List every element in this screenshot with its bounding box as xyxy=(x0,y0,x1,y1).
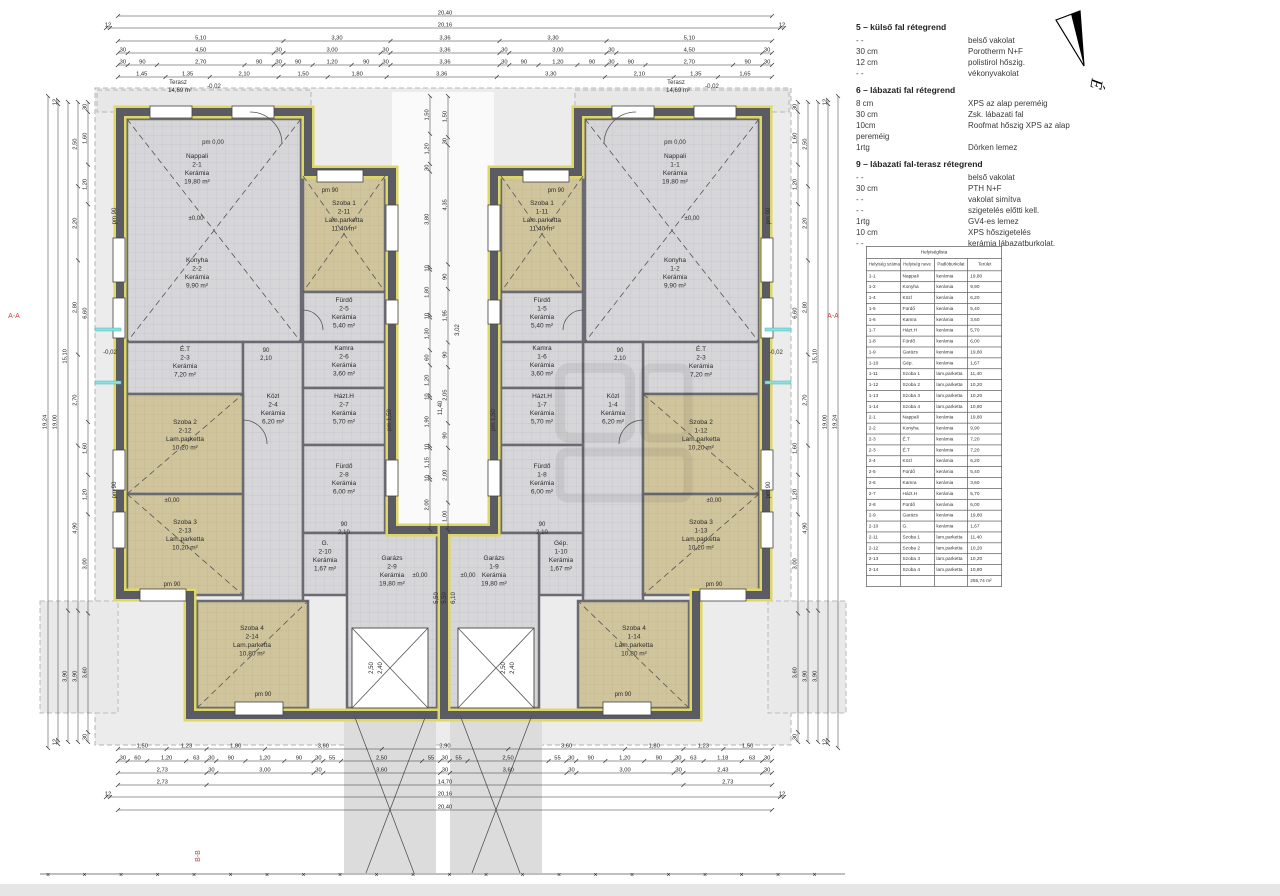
room-name: Nappali xyxy=(900,271,934,282)
room-2-7-hazt-label: Házt.H2-7Kerámia5,70 m² xyxy=(332,393,357,426)
dim-value: 90 xyxy=(295,60,301,66)
dim-value: 19,00 xyxy=(53,415,59,430)
floor-covering: kerámia xyxy=(934,271,968,282)
window xyxy=(113,298,125,338)
schedule-row: 2-11Szoba 1lam.parketta11,40 xyxy=(866,532,1001,543)
dim-value: 55 xyxy=(428,756,434,762)
dim-value: 15,10 xyxy=(813,349,819,364)
room-area: 6,20 xyxy=(968,293,1002,304)
room-number: 2-2 xyxy=(866,423,900,434)
dim-value: 90 xyxy=(443,352,449,358)
dim-value: 2,20 xyxy=(803,218,809,229)
room-schedule: HelyiséglistaHelyiség számaHelyiség neve… xyxy=(866,246,1009,587)
schedule-row: 1-14Szoba 4lam.parketta10,80 xyxy=(866,401,1001,412)
fence-x-mark: × xyxy=(593,872,597,879)
dim-value: 90 xyxy=(363,60,369,66)
dim-value: 30 xyxy=(425,164,431,170)
dim-value: 2,73 xyxy=(157,768,168,774)
legend-row-thickness: - - xyxy=(856,172,968,183)
schedule-row: 1-12Szoba 2lam.parketta10,20 xyxy=(866,380,1001,391)
schedule-row: 2-7Házt.Hkerámia5,70 xyxy=(866,488,1001,499)
room-number: 1-13 xyxy=(866,391,900,402)
dim-value: 1,20 xyxy=(425,143,431,154)
dim-value: 19,24 xyxy=(833,414,839,429)
room-area: 10,20 xyxy=(968,543,1002,554)
dim-value: 30 xyxy=(208,768,214,774)
fence-x-mark: × xyxy=(630,872,634,879)
room-number: 1-5 xyxy=(866,303,900,314)
dim-value: 30 xyxy=(608,48,614,54)
section-mark: A-A xyxy=(827,313,839,320)
plan-label: -0,02 xyxy=(103,350,117,356)
plan-label: pm 1,50 xyxy=(387,409,393,431)
dim-value: 30 xyxy=(764,756,770,762)
floor-covering: kerámia xyxy=(934,499,968,510)
dim-value: 3,90 xyxy=(813,671,819,682)
dim-value: 2,20 xyxy=(73,218,79,229)
dim-value: 3,00 xyxy=(326,48,337,54)
floor-covering: kerámia xyxy=(934,488,968,499)
schedule-row: 1-5Fürdőkerámia5,40 xyxy=(866,303,1001,314)
schedule-row: 1-11Szoba 1lam.parketta11,40 xyxy=(866,369,1001,380)
legend-row: 8 cmXPS az alap pereméig xyxy=(856,98,1276,109)
floor-covering: kerámia xyxy=(934,325,968,336)
vent-mark xyxy=(765,328,791,331)
room-area: 9,90 xyxy=(968,423,1002,434)
floor-covering: kerámia xyxy=(934,412,968,423)
legend-row-thickness: - - xyxy=(856,68,968,79)
dim-value: 1,50 xyxy=(443,111,449,122)
dim-value: 30 xyxy=(764,48,770,54)
room-area: 19,80 xyxy=(968,412,1002,423)
schedule-row: 1-1Nappalikerámia19,80 xyxy=(866,271,1001,282)
room-name: Szoba 3 xyxy=(900,391,934,402)
window xyxy=(386,460,398,496)
room-name: Fürdő xyxy=(900,303,934,314)
room-area: 3,60 xyxy=(968,314,1002,325)
room-name: Gép. xyxy=(900,358,934,369)
dim-value: 1,50 xyxy=(425,109,431,120)
legend-row-material: belső vakolat xyxy=(968,172,1276,183)
plan-label: pm 0,00 xyxy=(664,140,686,146)
room-number: 1-1 xyxy=(866,271,900,282)
dim-value: 30 xyxy=(382,48,388,54)
plan-label: Terasz xyxy=(667,80,685,86)
room-name: Házt.H xyxy=(900,325,934,336)
dim-value: 3,60 xyxy=(503,768,514,774)
window xyxy=(386,205,398,251)
page-edge-band xyxy=(0,884,1280,896)
schedule-row: 2-6Kamrakerámia3,60 xyxy=(866,478,1001,489)
plan-label: pm 90 xyxy=(112,207,118,224)
dim-value: 3,00 xyxy=(552,48,563,54)
plan-label: pm 90 xyxy=(548,188,565,194)
total-area: 255,74 m² xyxy=(968,575,1002,586)
legend-row-material: PTH N+F xyxy=(968,183,1276,194)
dim-value: 63 xyxy=(690,756,696,762)
dim-value: 2,10 xyxy=(634,72,645,78)
legend-row-thickness: 30 cm xyxy=(856,109,968,120)
dim-value: 1,60 xyxy=(793,443,799,454)
dim-value: 1,20 xyxy=(793,179,799,190)
plan-label: 2,10 xyxy=(614,356,626,362)
window xyxy=(761,298,773,338)
dim-value: 3,60 xyxy=(318,744,329,750)
plan-label: ±0,00 xyxy=(685,216,701,222)
room-number: 2-6 xyxy=(866,478,900,489)
room-area: 11,40 xyxy=(968,369,1002,380)
room-1-1-nappali-konyha-label: Nappali1-1Kerámia19,80 m² xyxy=(662,153,688,186)
room-2-9-garazs-label: Garázs2-9Kerámia19,80 m² xyxy=(379,555,405,588)
room-number: 2-3 xyxy=(866,434,900,445)
plan-label: 90 xyxy=(617,348,624,354)
plan-label: 2,50 xyxy=(501,662,507,674)
plan-label: -0,02 xyxy=(207,84,221,90)
dim-value: 1,23 xyxy=(181,744,192,750)
room-name: É.T xyxy=(900,445,934,456)
dim-value: 30 xyxy=(443,138,449,144)
dim-value: 1,35 xyxy=(690,72,701,78)
plan-label: pm 1,50 xyxy=(491,409,497,431)
dim-value: 90 xyxy=(744,60,750,66)
room-name: Szoba 1 xyxy=(900,369,934,380)
room-2-6-kamra-label: Kamra2-6Kerámia3,60 m² xyxy=(332,345,357,378)
dim-value: 90 xyxy=(589,60,595,66)
plan-label: pm 90 xyxy=(766,207,772,224)
window xyxy=(150,106,192,118)
room-area: 7,20 xyxy=(968,445,1002,456)
dim-value: 2,05 xyxy=(443,389,449,400)
room-1-9-garazs-label: Garázs1-9Kerámia19,80 m² xyxy=(481,555,507,588)
floor-covering: lam.parketta xyxy=(934,380,968,391)
room-name: Közl xyxy=(900,456,934,467)
legend-row-thickness: 10cm xyxy=(856,120,968,131)
dim-value: 3,36 xyxy=(439,60,450,66)
dim-value: 30 xyxy=(764,60,770,66)
dim-value: 3,36 xyxy=(439,36,450,42)
room-number: 1-6 xyxy=(866,314,900,325)
dim-value: 2,73 xyxy=(722,780,733,786)
legend-row: 1rtgDörken lemez xyxy=(856,142,1276,153)
plan-label: pm 90 xyxy=(255,692,272,698)
schedule-row: 2-12Szoba 2lam.parketta10,20 xyxy=(866,543,1001,554)
room-area: 5,70 xyxy=(968,325,1002,336)
fence-x-mark: × xyxy=(374,872,378,879)
dim-value: 30 xyxy=(568,756,574,762)
floor-covering: kerámia xyxy=(934,423,968,434)
dim-value: 3,30 xyxy=(545,72,556,78)
plan-label: -0,02 xyxy=(769,350,783,356)
fence-x-mark: × xyxy=(119,872,123,879)
dim-value: 30 xyxy=(442,768,448,774)
room-number: 2-11 xyxy=(866,532,900,543)
dim-value: 30 xyxy=(120,48,126,54)
plan-label: 14,69 m² xyxy=(168,88,192,94)
room-name: Szoba 1 xyxy=(900,532,934,543)
plan-label: ±0,00 xyxy=(165,498,181,504)
dim-value: 19,24 xyxy=(43,414,49,429)
dim-value: 3,00 xyxy=(259,768,270,774)
dim-value: 20,40 xyxy=(438,11,453,17)
room-number: 2-1 xyxy=(866,412,900,423)
dim-value: 30 xyxy=(83,734,89,740)
schedule-row: 2-10G.kerámia1,67 xyxy=(866,521,1001,532)
fence-x-mark: × xyxy=(484,872,488,879)
schedule-row: 2-1Nappalikerámia19,80 xyxy=(866,412,1001,423)
dim-value: 4,50 xyxy=(195,48,206,54)
dim-value: 30 xyxy=(793,104,799,110)
dim-value: 1,23 xyxy=(698,744,709,750)
dim-value: 10 xyxy=(425,265,431,271)
dim-value: 2,10 xyxy=(238,72,249,78)
legend-row-thickness: 12 cm xyxy=(856,57,968,68)
plan-label: ±0,00 xyxy=(707,498,723,504)
dim-value: 2,70 xyxy=(803,394,809,405)
room-schedule-table: HelyiséglistaHelyiség számaHelyiség neve… xyxy=(866,246,1002,587)
driveway-right xyxy=(450,715,542,873)
floor-covering: kerámia xyxy=(934,467,968,478)
fence-x-mark: × xyxy=(82,872,86,879)
room-name: Fürdő xyxy=(900,336,934,347)
legend-row-thickness: 1rtg xyxy=(856,142,968,153)
dim-value: 90 xyxy=(443,432,449,438)
room-name: Szoba 2 xyxy=(900,543,934,554)
floor-covering: kerámia xyxy=(934,293,968,304)
schedule-total-row: 255,74 m² xyxy=(866,575,1001,586)
dim-value: 3,30 xyxy=(331,36,342,42)
floor-covering: lam.parketta xyxy=(934,369,968,380)
vent-mark xyxy=(95,381,121,384)
floor-covering: kerámia xyxy=(934,314,968,325)
legend-row: 30 cmPTH N+F xyxy=(856,183,1276,194)
room-number: 2-9 xyxy=(866,510,900,521)
legend-row: 1rtgGV4-es lemez xyxy=(856,216,1276,227)
schedule-row: 2-2Konyhakerámia9,90 xyxy=(866,423,1001,434)
window xyxy=(386,300,398,324)
room-area: 5,40 xyxy=(968,303,1002,314)
dim-value: 1,80 xyxy=(352,72,363,78)
dim-value: 1,20 xyxy=(793,489,799,500)
fence-x-mark: × xyxy=(338,872,342,879)
legend-row-material: vakolat simítva xyxy=(968,194,1276,205)
section-mark: A-A xyxy=(8,313,20,320)
room-name: Fürdő xyxy=(900,467,934,478)
floor-covering: kerámia xyxy=(934,510,968,521)
dim-value: 10 xyxy=(425,475,431,481)
floor-covering: kerámia xyxy=(934,478,968,489)
plan-label: pm 90 xyxy=(766,481,772,498)
fence-x-mark: × xyxy=(155,872,159,879)
dim-value: 1,20 xyxy=(552,60,563,66)
schedule-row: 2-3É.Tkerámia7,20 xyxy=(866,434,1001,445)
dim-value: 30 xyxy=(501,48,507,54)
section-mark: B-B xyxy=(195,850,202,862)
legend-row-material: szigetelés előtti kell. xyxy=(968,205,1276,216)
room-name: Szoba 3 xyxy=(900,554,934,565)
legend-row-material: Roofmat hőszig XPS az alap xyxy=(968,120,1276,131)
room-number: 1-11 xyxy=(866,369,900,380)
room-name: Kamra xyxy=(900,478,934,489)
legend-row-thickness: 8 cm xyxy=(856,98,968,109)
fence-x-mark: × xyxy=(411,872,415,879)
dim-value: 1,45 xyxy=(136,72,147,78)
legend-row-material: polistirol hőszig. xyxy=(968,57,1276,68)
plan-label: Terasz xyxy=(169,80,187,86)
dim-value: 30 xyxy=(382,60,388,66)
room-area: 10,80 xyxy=(968,401,1002,412)
dim-value: 1,60 xyxy=(83,133,89,144)
fence-x-mark: × xyxy=(776,872,780,879)
schedule-column-header: Helyiség száma xyxy=(866,259,900,271)
window xyxy=(317,170,363,182)
dim-value: 10 xyxy=(425,444,431,450)
room-number: 2-12 xyxy=(866,543,900,554)
plan-label: 2,40 xyxy=(378,662,384,674)
dim-value: 4,90 xyxy=(803,522,809,533)
dim-value: 1,35 xyxy=(182,72,193,78)
window xyxy=(694,106,736,118)
schedule-row: 2-9Garázskerámia19,80 xyxy=(866,510,1001,521)
floor-covering: kerámia xyxy=(934,358,968,369)
plan-label: 5,50 xyxy=(442,592,448,604)
room-area: 5,40 xyxy=(968,467,1002,478)
window xyxy=(761,238,773,282)
room-area: 10,20 xyxy=(968,391,1002,402)
dim-value: 3,90 xyxy=(803,671,809,682)
dim-value: 3,00 xyxy=(83,558,89,569)
dim-value: 63 xyxy=(193,756,199,762)
dim-value: 12 xyxy=(823,99,829,105)
room-number: 1-7 xyxy=(866,325,900,336)
floor-covering: lam.parketta xyxy=(934,391,968,402)
window xyxy=(700,589,746,601)
dim-value: 1,50 xyxy=(297,72,308,78)
window xyxy=(113,238,125,282)
dim-value: 90 xyxy=(296,756,302,762)
schedule-row: 1-9Garázskerámia19,80 xyxy=(866,347,1001,358)
dim-value: 3,60 xyxy=(376,768,387,774)
plan-label: ±0,00 xyxy=(413,573,429,579)
dim-value: 2,50 xyxy=(73,138,79,149)
schedule-row: 2-14Szoba 4lam.parketta10,80 xyxy=(866,565,1001,576)
room-area: 5,70 xyxy=(968,488,1002,499)
dim-value: 20,40 xyxy=(438,805,453,811)
schedule-row: 1-6Kamrakerámia3,60 xyxy=(866,314,1001,325)
dim-value: 90 xyxy=(256,60,262,66)
dim-value: 10 xyxy=(425,393,431,399)
room-number: 1-9 xyxy=(866,347,900,358)
dim-value: 55 xyxy=(554,756,560,762)
room-number: 1-12 xyxy=(866,380,900,391)
floor-covering: kerámia xyxy=(934,434,968,445)
legend-row: pereméig xyxy=(856,131,1276,142)
legend-row-material xyxy=(968,131,1276,142)
room-area: 19,80 xyxy=(968,271,1002,282)
room-number: 2-3 xyxy=(866,445,900,456)
dim-value: 14,70 xyxy=(438,780,453,786)
dim-value: 1,65 xyxy=(739,72,750,78)
room-area: 7,20 xyxy=(968,434,1002,445)
dim-value: 20,16 xyxy=(438,23,453,29)
side-terrace-left xyxy=(40,601,118,713)
room-number: 2-13 xyxy=(866,554,900,565)
dim-value: 1,80 xyxy=(230,744,241,750)
legend-row-thickness: 10 cm xyxy=(856,227,968,238)
legend-row-thickness: - - xyxy=(856,35,968,46)
dim-value: 6,60 xyxy=(793,307,799,318)
schedule-row: 1-4Közlkerámia6,20 xyxy=(866,293,1001,304)
legend-row-material: Zsk. lábazati fal xyxy=(968,109,1276,120)
plan-label: 3,02 xyxy=(455,324,461,336)
dim-value: 90 xyxy=(588,756,594,762)
room-name: Garázs xyxy=(900,510,934,521)
dim-value: 1,20 xyxy=(619,756,630,762)
fence-x-mark: × xyxy=(812,872,816,879)
plan-label: ±0,00 xyxy=(189,216,205,222)
room-area: 9,90 xyxy=(968,282,1002,293)
room-name: G. xyxy=(900,521,934,532)
floor-covering: kerámia xyxy=(934,456,968,467)
room-name: Konyha xyxy=(900,423,934,434)
floor-covering: kerámia xyxy=(934,303,968,314)
dim-value: 20,16 xyxy=(438,792,453,798)
driveway-left xyxy=(344,715,436,873)
room-number: 2-4 xyxy=(866,456,900,467)
dim-value: 3,90 xyxy=(439,744,450,750)
room-number: 1-10 xyxy=(866,358,900,369)
fence-x-mark: × xyxy=(520,872,524,879)
room-area: 10,80 xyxy=(968,565,1002,576)
room-name: Szoba 2 xyxy=(900,380,934,391)
fence-x-mark: × xyxy=(703,872,707,879)
fence-x-mark: × xyxy=(228,872,232,879)
legend-row-material: XPS hőszigetelés xyxy=(968,227,1276,238)
legend-row: 10cmRoofmat hőszig XPS az alap xyxy=(856,120,1276,131)
dim-value: 1,60 xyxy=(83,443,89,454)
dim-value: 60 xyxy=(134,756,140,762)
empty-cell xyxy=(900,575,934,586)
schedule-row: 1-10Gép.kerámia1,67 xyxy=(866,358,1001,369)
room-number: 2-8 xyxy=(866,499,900,510)
dim-value: 30 xyxy=(275,48,281,54)
plan-label: 90 xyxy=(539,522,546,528)
dim-value: 1,20 xyxy=(83,489,89,500)
plan-label: 11,40 xyxy=(438,400,444,415)
room-1-6-kamra-label: Kamra1-6Kerámia3,60 m² xyxy=(530,345,555,378)
schedule-row: 1-13Szoba 3lam.parketta10,20 xyxy=(866,391,1001,402)
floorplan-page: { "legend": { "sections": [ {"title": "5… xyxy=(0,0,1280,896)
dim-value: 5,10 xyxy=(195,36,206,42)
plan-label: ±0,00 xyxy=(461,573,477,579)
dim-value: 2,50 xyxy=(502,756,513,762)
schedule-row: 1-8Fürdőkerámia6,00 xyxy=(866,336,1001,347)
floor-covering: lam.parketta xyxy=(934,532,968,543)
room-area: 3,60 xyxy=(968,478,1002,489)
plan-label: 2,10 xyxy=(338,530,350,536)
schedule-column-header: Padlóburkolat xyxy=(934,259,968,271)
dim-value: 3,00 xyxy=(793,558,799,569)
dim-value: 30 xyxy=(120,756,126,762)
legend-row-thickness: - - xyxy=(856,194,968,205)
room-area: 6,20 xyxy=(968,456,1002,467)
fence-x-mark: × xyxy=(46,872,50,879)
dim-value: 1,60 xyxy=(793,133,799,144)
plan-label: 5,50 xyxy=(434,592,440,604)
dim-value: 3,90 xyxy=(63,671,69,682)
room-1-7-hazt-label: Házt.H1-7Kerámia5,70 m² xyxy=(530,393,555,426)
dim-value: 90 xyxy=(139,60,145,66)
dim-value: 2,73 xyxy=(157,780,168,786)
